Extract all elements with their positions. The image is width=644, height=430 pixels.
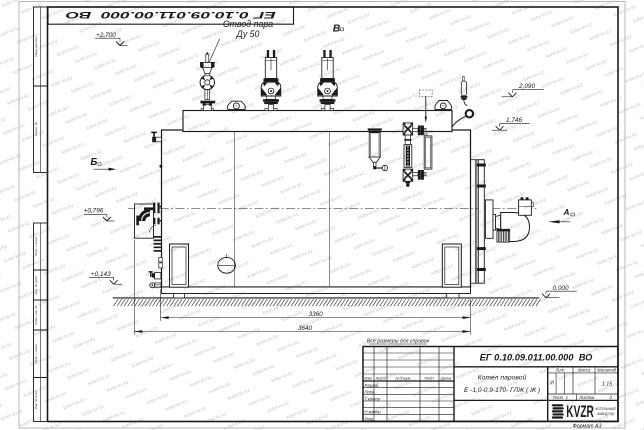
- svg-text:Масштаб: Масштаб: [597, 368, 617, 373]
- svg-text:КОТЕЛЬНЫЙ: КОТЕЛЬНЫЙ: [595, 407, 616, 411]
- svg-text:Подп. и дата: Подп. и дата: [34, 237, 38, 257]
- svg-text:2,090: 2,090: [518, 83, 535, 90]
- svg-text:И: И: [550, 380, 554, 386]
- svg-text:Дата: Дата: [440, 376, 452, 381]
- svg-text:Изм.: Изм.: [364, 376, 372, 381]
- svg-text:Формат А3: Формат А3: [573, 423, 602, 429]
- svg-text:В: В: [333, 23, 341, 35]
- svg-text:Пров.: Пров.: [365, 390, 376, 395]
- svg-text:Утв.: Утв.: [365, 416, 374, 421]
- svg-text:Подп.: Подп.: [424, 376, 434, 381]
- svg-text:Листов: Листов: [579, 395, 596, 400]
